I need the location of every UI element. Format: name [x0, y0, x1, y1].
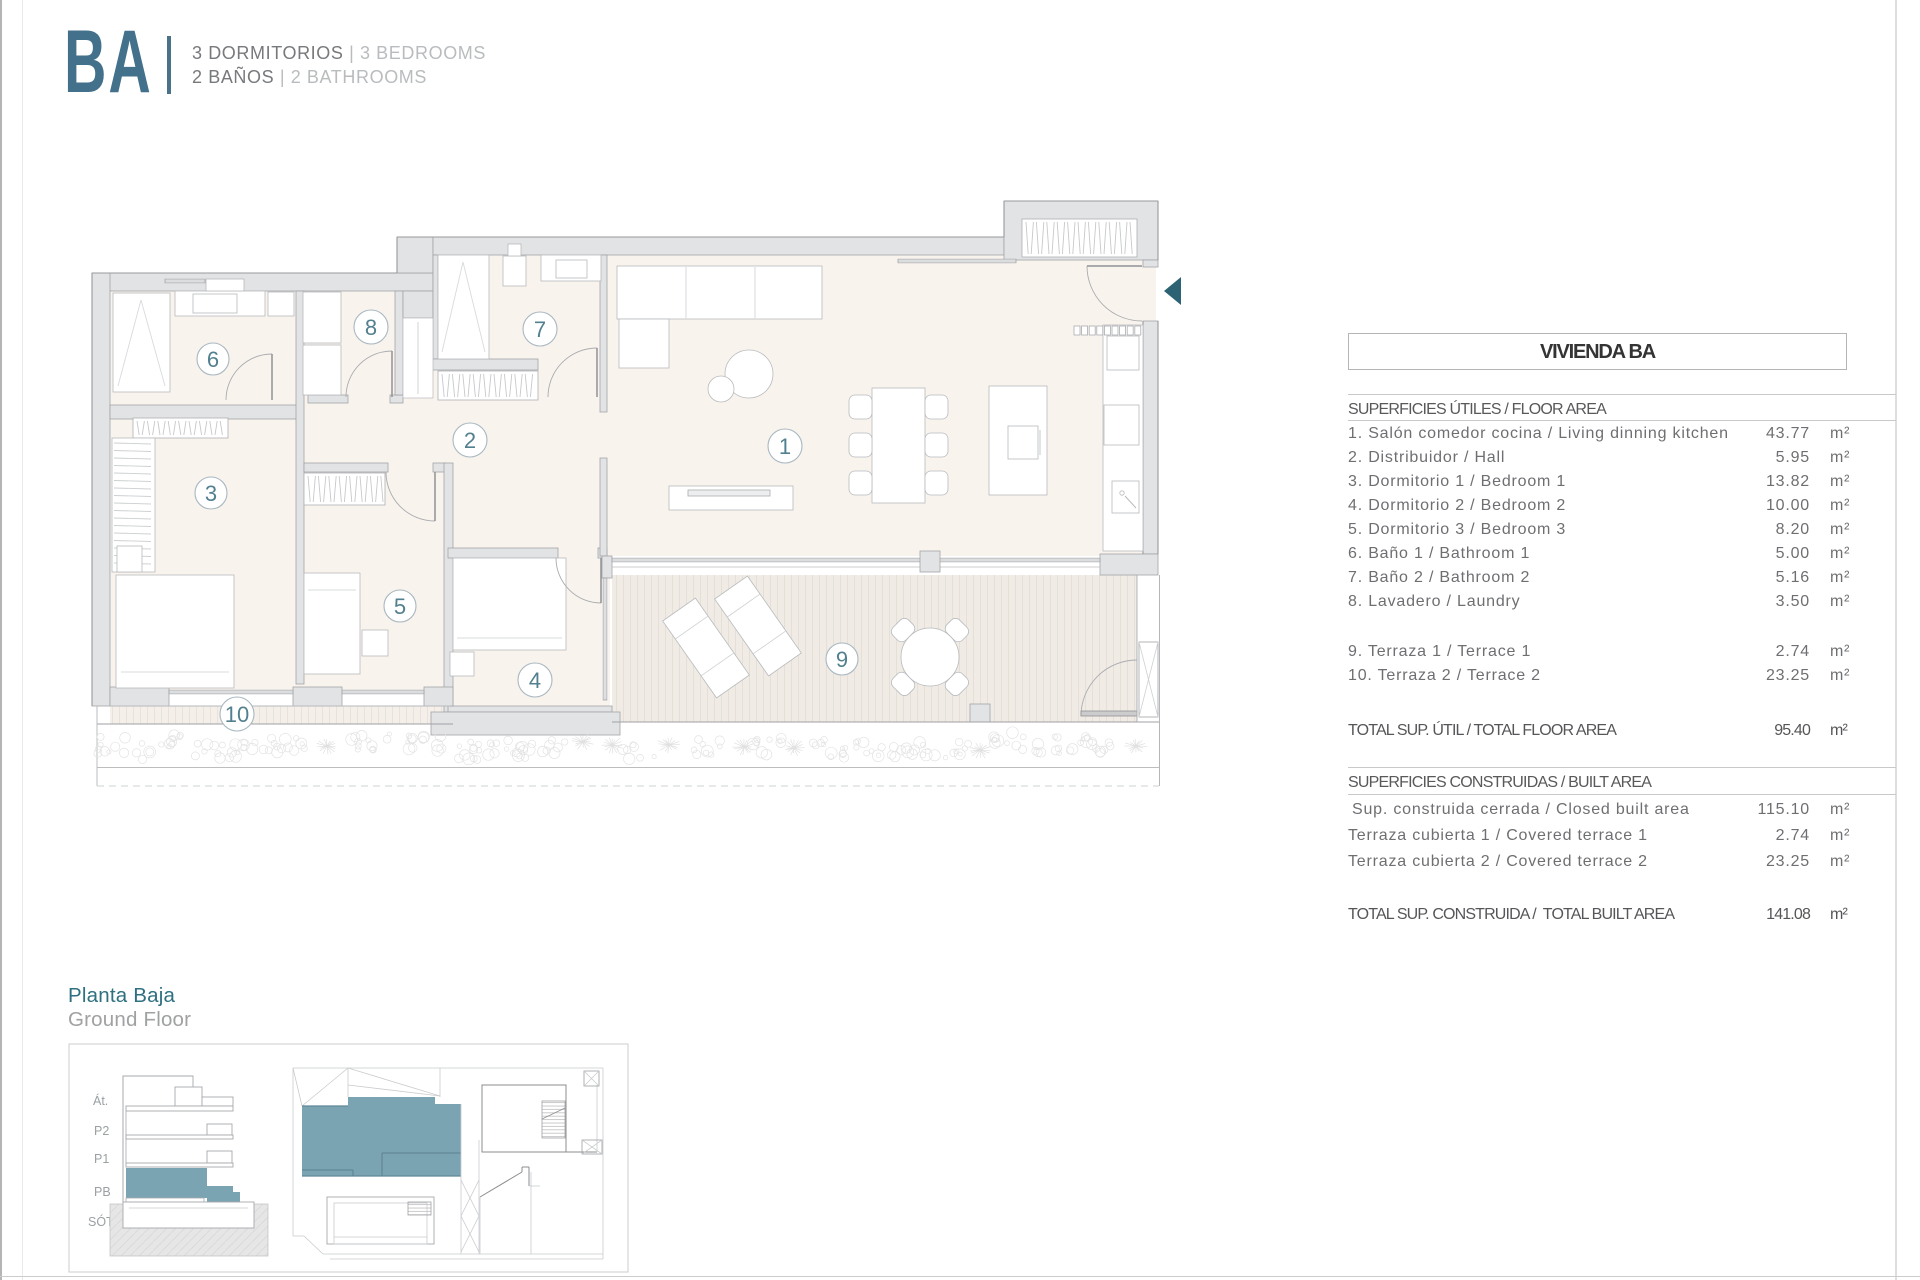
svg-text:Át.: Át.	[93, 1093, 108, 1108]
svg-text:P1: P1	[94, 1152, 109, 1166]
svg-text:PB: PB	[94, 1185, 111, 1199]
svg-text:P2: P2	[94, 1124, 109, 1138]
